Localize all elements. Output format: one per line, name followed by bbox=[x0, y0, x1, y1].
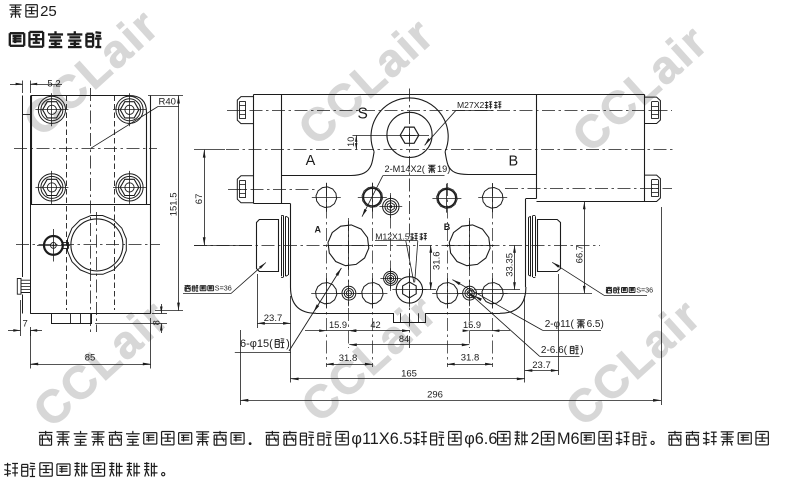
svg-text:B: B bbox=[509, 154, 519, 170]
svg-text:23.7: 23.7 bbox=[532, 360, 551, 371]
svg-text:23.7: 23.7 bbox=[264, 313, 283, 324]
svg-text:31.6: 31.6 bbox=[432, 252, 443, 271]
svg-text:S=36: S=36 bbox=[636, 285, 653, 294]
svg-text:2-M14X2(: 2-M14X2( bbox=[385, 164, 425, 174]
svg-text:S: S bbox=[358, 106, 368, 123]
svg-text:A: A bbox=[315, 225, 322, 235]
svg-text:19): 19) bbox=[437, 164, 450, 174]
svg-text:2-φ11(: 2-φ11( bbox=[545, 319, 575, 330]
svg-text:10: 10 bbox=[346, 137, 356, 147]
svg-text:15.9: 15.9 bbox=[329, 320, 347, 330]
svg-text:M6: M6 bbox=[557, 430, 580, 448]
svg-text:67: 67 bbox=[194, 194, 205, 205]
svg-text:296: 296 bbox=[427, 390, 443, 401]
svg-text:31.8: 31.8 bbox=[461, 352, 480, 363]
svg-text:31.8: 31.8 bbox=[339, 353, 358, 364]
svg-text:15.9: 15.9 bbox=[463, 320, 481, 330]
svg-text:5.2: 5.2 bbox=[47, 78, 60, 89]
svg-text:2: 2 bbox=[531, 430, 540, 448]
svg-text:42: 42 bbox=[370, 320, 380, 330]
svg-text:): ) bbox=[580, 345, 583, 356]
svg-text:151.5: 151.5 bbox=[169, 193, 180, 217]
svg-text:8: 8 bbox=[152, 320, 162, 325]
svg-text:165: 165 bbox=[401, 368, 417, 379]
svg-text:25: 25 bbox=[40, 3, 57, 20]
svg-text:7: 7 bbox=[23, 318, 28, 329]
svg-text:85: 85 bbox=[85, 353, 96, 364]
svg-text:66.7: 66.7 bbox=[574, 245, 585, 264]
svg-text:φ6.6: φ6.6 bbox=[464, 430, 497, 448]
svg-text:84: 84 bbox=[399, 334, 409, 344]
svg-text:2-6.6(: 2-6.6( bbox=[541, 345, 568, 356]
svg-text:): ) bbox=[286, 338, 290, 350]
svg-text:φ11X6.5: φ11X6.5 bbox=[351, 430, 412, 448]
svg-text:6-φ15(: 6-φ15( bbox=[240, 338, 273, 350]
svg-text:S=36: S=36 bbox=[215, 284, 232, 293]
svg-text:A: A bbox=[306, 153, 316, 169]
svg-text:6.5): 6.5) bbox=[587, 319, 604, 330]
svg-text:33.35: 33.35 bbox=[505, 253, 516, 277]
svg-text:M27X2: M27X2 bbox=[457, 100, 484, 110]
svg-text:R40: R40 bbox=[159, 97, 176, 108]
